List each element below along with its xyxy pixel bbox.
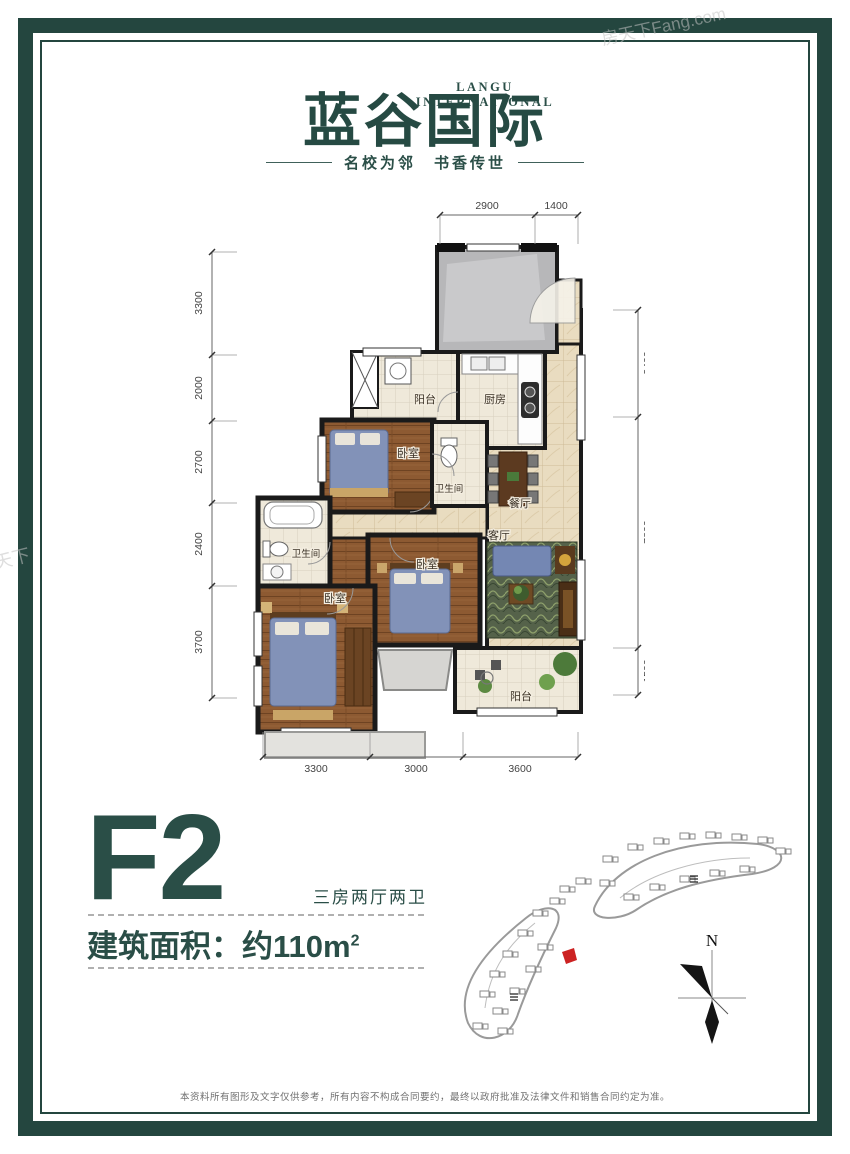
bay-window-mid bbox=[378, 650, 452, 690]
room-bedroom-mid bbox=[368, 535, 480, 645]
label-dining: 餐厅 bbox=[509, 496, 531, 510]
unit-code: F2 bbox=[86, 806, 224, 910]
bay-window-master bbox=[265, 732, 425, 758]
bed-icon bbox=[270, 612, 336, 720]
dim-left-2: 2000 bbox=[193, 376, 205, 400]
dim-top-2: 1400 bbox=[544, 200, 568, 212]
dim-left-4: 2400 bbox=[193, 532, 205, 556]
tagline-text: 名校为邻 书香传世 bbox=[344, 152, 506, 173]
compass-north-label: N bbox=[706, 931, 718, 950]
dim-bottom-3: 3600 bbox=[508, 763, 532, 775]
floor-plan: 阳台 厨房 卧室 卫生间 餐厅 卫生间 客厅 卧室 卧室 阳台 bbox=[185, 192, 645, 807]
tagline-rule-left bbox=[266, 162, 332, 163]
wardrobe bbox=[345, 628, 371, 706]
dim-right-3: 1500 bbox=[642, 659, 645, 683]
label-balcony-top: 阳台 bbox=[414, 392, 436, 406]
area-superscript: 2 bbox=[351, 933, 360, 950]
bathtub-icon bbox=[264, 502, 322, 528]
dim-right-2: 7800 bbox=[642, 520, 645, 544]
area-text: 建筑面积：约110m bbox=[87, 929, 351, 964]
window bbox=[363, 348, 421, 356]
bed-icon bbox=[330, 430, 388, 497]
tv-cabinet-icon bbox=[559, 582, 577, 636]
stove-icon bbox=[521, 382, 539, 418]
plant-icon bbox=[553, 652, 577, 676]
unit-layout-desc: 三房两厅两卫 bbox=[313, 883, 427, 908]
nightstand bbox=[453, 563, 463, 573]
dim-left-3: 2700 bbox=[193, 450, 205, 474]
window bbox=[254, 612, 262, 656]
label-bedroom-top: 卧室 bbox=[397, 446, 419, 460]
dim-top-1: 2900 bbox=[475, 200, 499, 212]
unit-area: 建筑面积：约110m2 bbox=[87, 921, 359, 966]
toilet-icon bbox=[263, 541, 288, 557]
floorplan-poster: 房天下Fang.com 天下 房天下 LANGU INTERNATIONAL 蓝… bbox=[0, 0, 850, 1154]
label-bath-center: 卫生间 bbox=[435, 483, 464, 495]
sofa-icon bbox=[493, 546, 551, 576]
window bbox=[318, 436, 326, 482]
hall-to-master bbox=[330, 538, 370, 586]
living-room-set bbox=[487, 542, 577, 638]
site-map-drawing: N bbox=[440, 818, 810, 1073]
dim-bottom-2: 3000 bbox=[404, 763, 428, 775]
dresser bbox=[395, 492, 431, 507]
label-bedroom-mid: 卧室 bbox=[416, 557, 438, 571]
brand-name-chinese: 蓝谷国际 bbox=[270, 92, 580, 153]
dim-bottom-1: 3300 bbox=[304, 763, 328, 775]
label-living: 客厅 bbox=[488, 528, 510, 542]
room-bedroom-master bbox=[254, 586, 375, 736]
window bbox=[577, 355, 585, 440]
label-bedroom-master: 卧室 bbox=[324, 591, 346, 605]
site-map: N bbox=[440, 818, 810, 1073]
label-balcony-bottom: 阳台 bbox=[510, 689, 532, 703]
label-bath-left: 卫生间 bbox=[292, 548, 321, 560]
dim-left-5: 3700 bbox=[193, 630, 205, 654]
window bbox=[254, 666, 262, 706]
nightstand bbox=[261, 602, 272, 613]
site-cluster-lower bbox=[465, 878, 591, 1038]
site-cluster-upper bbox=[594, 832, 791, 918]
floor-plan-drawing: 阳台 厨房 卧室 卫生间 餐厅 卫生间 客厅 卧室 卧室 阳台 bbox=[185, 192, 645, 807]
divider-dashed-bottom bbox=[88, 967, 424, 969]
window bbox=[577, 560, 585, 640]
label-kitchen: 厨房 bbox=[484, 393, 506, 406]
room-bedroom-top bbox=[318, 420, 434, 512]
highlighted-unit-marker bbox=[562, 948, 577, 964]
brand-tagline: 名校为邻 书香传世 bbox=[265, 152, 585, 173]
disclaimer-text: 本资料所有图形及文字仅供参考，所有内容不构成合同要约，最终以政府批准及法律文件和… bbox=[0, 1089, 850, 1103]
nightstand bbox=[377, 563, 387, 573]
tagline-rule-right bbox=[518, 162, 584, 163]
washing-machine-icon bbox=[385, 358, 411, 384]
dim-left-1: 3300 bbox=[193, 291, 205, 315]
bed-icon bbox=[390, 563, 450, 633]
sink-icon bbox=[263, 564, 291, 580]
room-bath-left bbox=[258, 498, 330, 586]
window bbox=[477, 708, 557, 716]
dim-right-1: 3400 bbox=[642, 351, 645, 375]
divider-dashed-top bbox=[88, 914, 424, 916]
room-balcony-bottom bbox=[455, 648, 581, 716]
compass-icon: N bbox=[678, 931, 746, 1044]
